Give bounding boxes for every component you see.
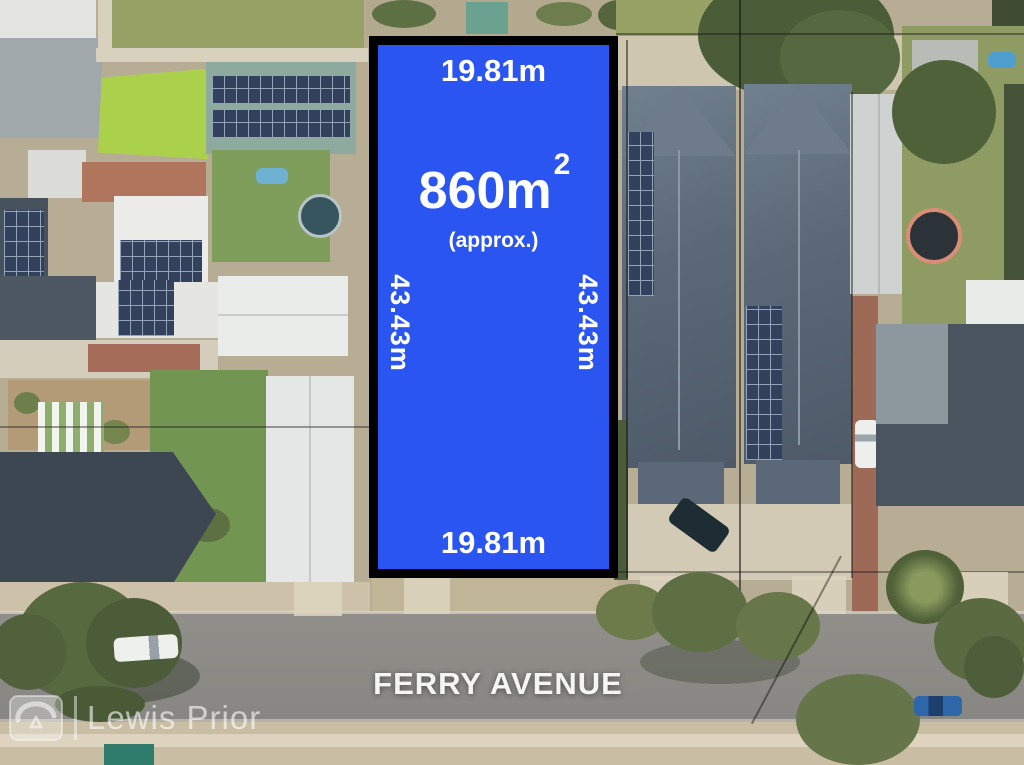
fence-line	[616, 33, 1024, 35]
porch-roof	[756, 460, 840, 504]
boundary-line	[851, 92, 853, 578]
green-shed	[466, 2, 508, 34]
roof-ridge	[878, 94, 880, 294]
boundary-line	[626, 40, 628, 578]
roof-white-gable	[218, 276, 348, 356]
area-label: 860m2	[378, 165, 609, 217]
solar-panels	[746, 306, 782, 460]
tree	[372, 0, 436, 28]
round-pool	[298, 194, 342, 238]
driveway-apron	[404, 578, 450, 614]
dimension-bottom: 19.81m	[378, 525, 609, 561]
garage-roof	[876, 324, 948, 424]
area-approx-note: (approx.)	[378, 229, 609, 253]
tree	[796, 674, 920, 765]
roof-ridge	[218, 314, 348, 316]
shed-roof	[28, 150, 86, 198]
roof-dark	[0, 276, 96, 340]
roof-ridge	[798, 150, 800, 445]
watermark-brand-text: Lewis Prior	[87, 699, 261, 737]
parked-car-blue	[914, 696, 962, 716]
small-pool	[256, 168, 288, 184]
front-driveway	[616, 504, 852, 580]
solar-panels	[628, 132, 654, 296]
parked-car-white	[113, 634, 179, 662]
path	[96, 48, 368, 62]
power-line	[0, 426, 372, 428]
solar-panels	[212, 110, 350, 138]
street-name: FERRY AVENUE	[352, 666, 644, 702]
watermark-divider	[74, 696, 77, 740]
trampoline	[906, 208, 962, 264]
tree	[964, 636, 1024, 698]
small-pool	[988, 52, 1016, 68]
brand-watermark: Lewis Prior	[8, 694, 261, 742]
tree	[536, 2, 592, 26]
tree	[652, 572, 748, 652]
solar-panels	[212, 76, 350, 104]
aerial-photo: 19.81m 860m2 (approx.) 43.43m 43.43m 19.…	[0, 0, 1024, 765]
bush	[100, 420, 130, 444]
dimension-right: 43.43m	[572, 274, 603, 372]
shade-sail	[98, 68, 216, 164]
dimension-top: 19.81m	[378, 53, 609, 89]
bush	[14, 392, 40, 414]
area-superscript: 2	[554, 148, 571, 181]
path	[98, 0, 112, 56]
tree	[892, 60, 996, 164]
driveway-apron	[294, 582, 342, 616]
solar-panels	[118, 280, 174, 336]
tree	[736, 592, 820, 660]
area-value: 860m	[419, 162, 552, 220]
power-line	[739, 0, 741, 618]
roof-ridge	[309, 376, 311, 582]
green-shed	[104, 744, 154, 765]
brick-path	[88, 344, 200, 372]
lewis-prior-logo-icon	[8, 694, 64, 742]
roof-ridge	[678, 150, 680, 450]
roof-charcoal-hip	[0, 452, 216, 584]
roof-gray-topleft	[0, 38, 102, 138]
dimension-left: 43.43m	[384, 274, 415, 372]
lawn-top	[112, 0, 364, 52]
parcel-boundary: 19.81m 860m2 (approx.) 43.43m 43.43m 19.…	[369, 36, 618, 578]
